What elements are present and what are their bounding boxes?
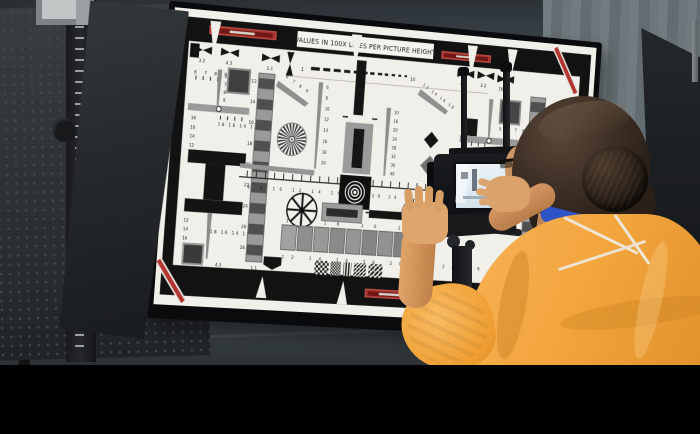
screenshot: VALUES IN 100X LINES PER PICTURE HEIGHT — [0, 0, 700, 434]
led-panel-knob — [52, 118, 76, 142]
wedge-tick: 10 — [394, 110, 399, 115]
wedge-tick: 16 — [393, 119, 398, 124]
marker-value: 1.1 — [250, 265, 257, 272]
gray-step-label: 24 — [242, 203, 248, 210]
marker-value: 3.2 — [480, 83, 487, 90]
stack-number: 14 — [189, 133, 195, 140]
stack-number: 16 — [191, 115, 197, 122]
wedge-tick: 24 — [392, 136, 397, 141]
stack-number: 12 — [189, 142, 195, 149]
gray-step-label: 28 — [239, 245, 245, 252]
wedge-tick: 14 — [323, 128, 328, 133]
wedge-tick: 10 — [325, 106, 330, 111]
marker-value: 4.3 — [214, 262, 221, 269]
dash-scale-end: 10 — [410, 76, 416, 82]
cross-center-dot — [216, 106, 221, 112]
gray-step-label: 14 — [250, 99, 256, 106]
screen-chart-preview-mark — [472, 169, 477, 191]
letterbox-bottom: Camera IQ test — [0, 365, 700, 434]
wedge-tick: 32 — [391, 154, 396, 159]
marker-value: 16.9 — [164, 257, 174, 264]
gray-step-label: 12 — [251, 78, 257, 85]
gray-step-label: 18 — [247, 141, 253, 148]
dash-scale-start: 1 — [301, 67, 304, 73]
gray-patch-square — [182, 243, 203, 264]
wedge-tick: 20 — [321, 160, 326, 165]
wedge-tick: 28 — [392, 145, 397, 150]
ponytail-strands — [586, 150, 644, 208]
photo-scene: VALUES IN 100X LINES PER PICTURE HEIGHT — [0, 0, 700, 365]
stack-number: 16 — [190, 124, 196, 131]
marker-value: 1.1 — [266, 66, 273, 73]
screen-chart-preview-mark — [461, 172, 468, 179]
led-panel-sticker — [36, 0, 94, 25]
glasses-lens — [500, 159, 513, 168]
stack-number: 12 — [183, 217, 189, 224]
wedge-tick: 16 — [322, 139, 327, 144]
rig-rod-cap — [458, 67, 469, 76]
rig-rod-cap — [500, 62, 512, 72]
right-hand — [486, 176, 530, 212]
left-hand — [402, 202, 448, 244]
wedge-tick: 20 — [393, 128, 398, 133]
marker-value: 3.2 — [198, 58, 205, 65]
wedge-tick: 40 — [390, 171, 395, 176]
gray-step-label: 26 — [241, 224, 247, 231]
gray-step-label: 16 — [248, 120, 254, 127]
wedge-tick: 36 — [390, 163, 395, 168]
stack-number: 14 — [182, 226, 188, 233]
light-stand-pole-right — [692, 20, 698, 82]
wedge-tick: 18 — [322, 149, 327, 154]
stack-number: 16 — [182, 235, 188, 242]
wedge-tick: 12 — [324, 117, 329, 122]
gray-patch-square — [227, 68, 250, 94]
marker-value: 4.3 — [225, 60, 232, 67]
